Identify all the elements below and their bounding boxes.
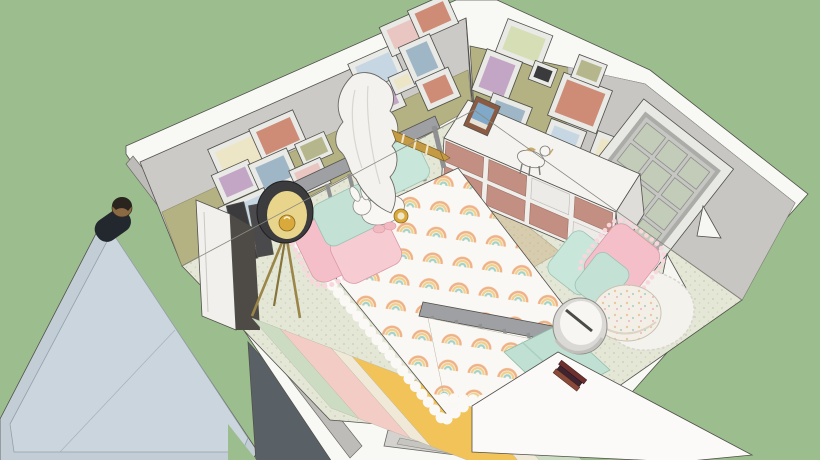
bunny-foot (373, 225, 385, 233)
model-canvas[interactable] (0, 0, 820, 460)
unicorn-leg (529, 166, 530, 176)
unicorn-leg (539, 166, 540, 175)
3d-viewport[interactable] (0, 0, 820, 460)
clock-face (397, 212, 404, 219)
bunny-foot (384, 222, 396, 230)
gold-clock[interactable] (394, 209, 408, 223)
door-leaf (196, 200, 236, 330)
drum-table-lamp[interactable] (553, 298, 607, 354)
